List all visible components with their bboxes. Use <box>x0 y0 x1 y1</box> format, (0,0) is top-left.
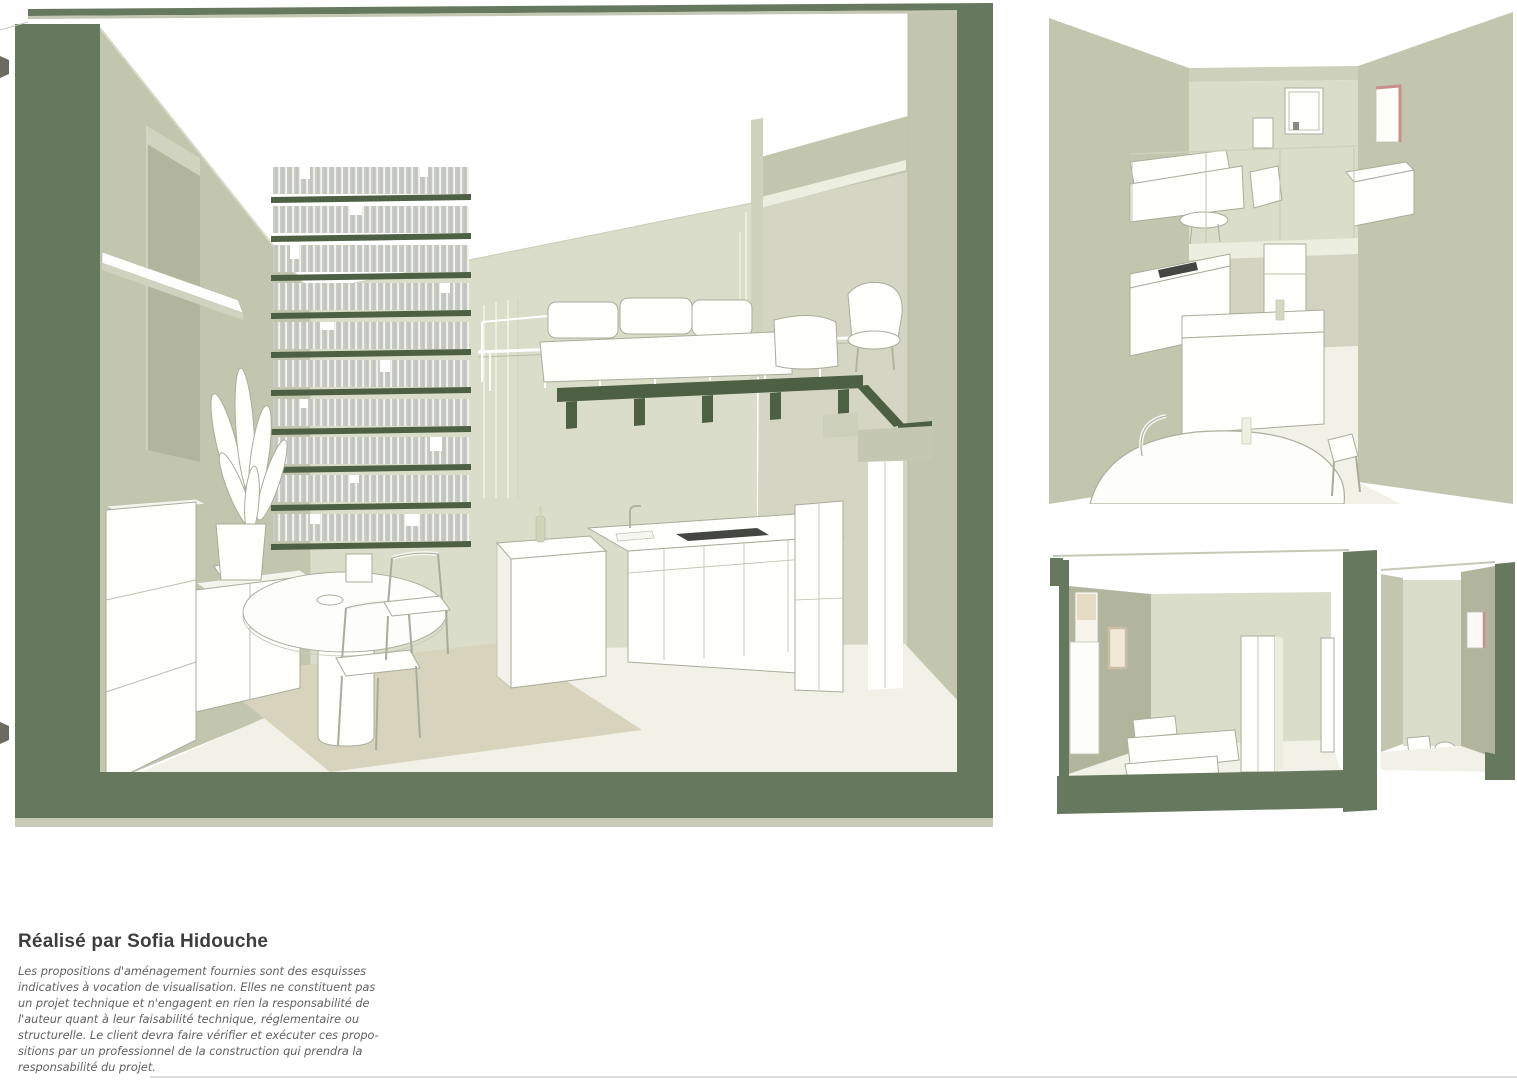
edge-mark-bottom <box>0 722 9 744</box>
disclaimer-line: sitions par un professionnel de la const… <box>18 1044 359 1060</box>
v2-armchair <box>1250 166 1282 208</box>
bedroom-section <box>1050 550 1377 814</box>
bottom-hairline <box>150 1076 1517 1078</box>
bedroom-picture <box>1109 628 1126 668</box>
disclaimer-line: Les propositions d'aménagement fournies … <box>18 964 359 980</box>
bathroom-back-wall <box>1403 580 1461 746</box>
v2-left-wall <box>1049 18 1189 504</box>
right-wall <box>908 8 957 700</box>
credit-title: Réalisé par Sofia Hidouche <box>18 931 359 953</box>
credit-block: Réalisé par Sofia Hidouche Les propositi… <box>18 931 359 1076</box>
disclaimer-line: responsabilité du projet. <box>18 1060 359 1076</box>
bedroom-door-left <box>1070 642 1099 754</box>
bathroom-right-wall <box>1461 566 1495 758</box>
tall-unit <box>868 435 903 690</box>
corridor-perspective-view <box>1046 4 1516 504</box>
bedroom-frame-bottom <box>1057 770 1345 814</box>
bedroom-frame-left <box>1059 560 1069 794</box>
bowl <box>317 595 343 605</box>
v2-table-bottle <box>1242 418 1251 444</box>
plant-pot <box>216 524 266 580</box>
disclaimer-line: structurelle. Le client devra faire véri… <box>18 1028 359 1044</box>
v2-island-front <box>1182 332 1324 434</box>
bathroom-section <box>1381 562 1515 780</box>
bottle <box>536 516 545 542</box>
disclaimer: Les propositions d'aménagement fournies … <box>18 964 359 1076</box>
v2-coffee-table <box>1180 212 1228 228</box>
tall-cabinet <box>106 502 196 785</box>
bathroom-panel <box>1467 612 1484 648</box>
v2-bottle <box>1276 300 1284 320</box>
v2-pink-window <box>1376 86 1402 142</box>
edge-mark-top <box>0 56 9 78</box>
v2-window <box>1285 88 1323 134</box>
frame-bottom <box>15 772 993 818</box>
bathroom-left-wall <box>1381 574 1403 752</box>
frame-right <box>957 4 993 818</box>
main-section-view <box>0 0 1000 840</box>
bedroom-door-right <box>1321 638 1334 752</box>
disclaimer-line: un projet technique et n'engagent en rie… <box>18 996 359 1012</box>
v2-ceiling-band <box>1189 66 1358 82</box>
bedroom-bathroom-sections <box>1037 542 1517 832</box>
v2-boiler <box>1253 118 1273 148</box>
v2-fridge <box>1264 244 1306 322</box>
bedroom-frame-right <box>1343 550 1377 812</box>
kitchen-island <box>511 551 606 688</box>
disclaimer-line: indicatives à vocation de visualisation.… <box>18 980 359 996</box>
disclaimer-line: l'auteur quant à leur faisabilité techni… <box>18 1012 359 1028</box>
frame-left <box>15 24 100 772</box>
table-box <box>346 554 372 582</box>
